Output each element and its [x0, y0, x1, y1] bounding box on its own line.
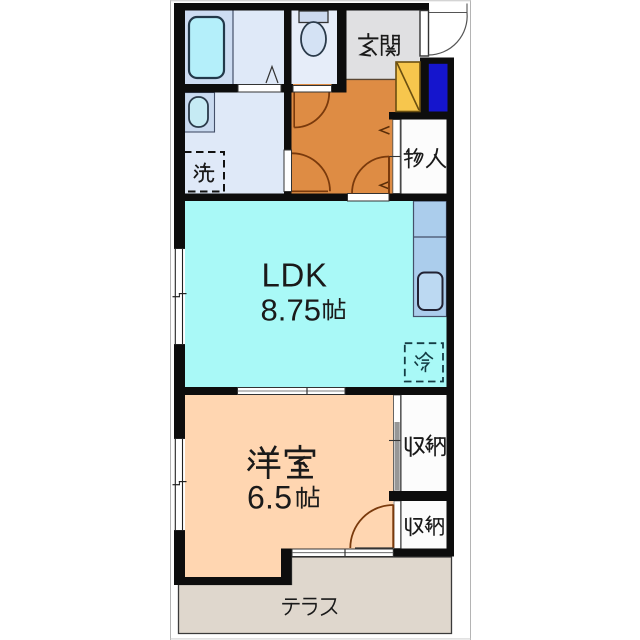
svg-text:8.75: 8.75 [261, 293, 322, 328]
svg-text:LDK: LDK [262, 257, 328, 294]
svg-text:6.5: 6.5 [247, 480, 292, 516]
